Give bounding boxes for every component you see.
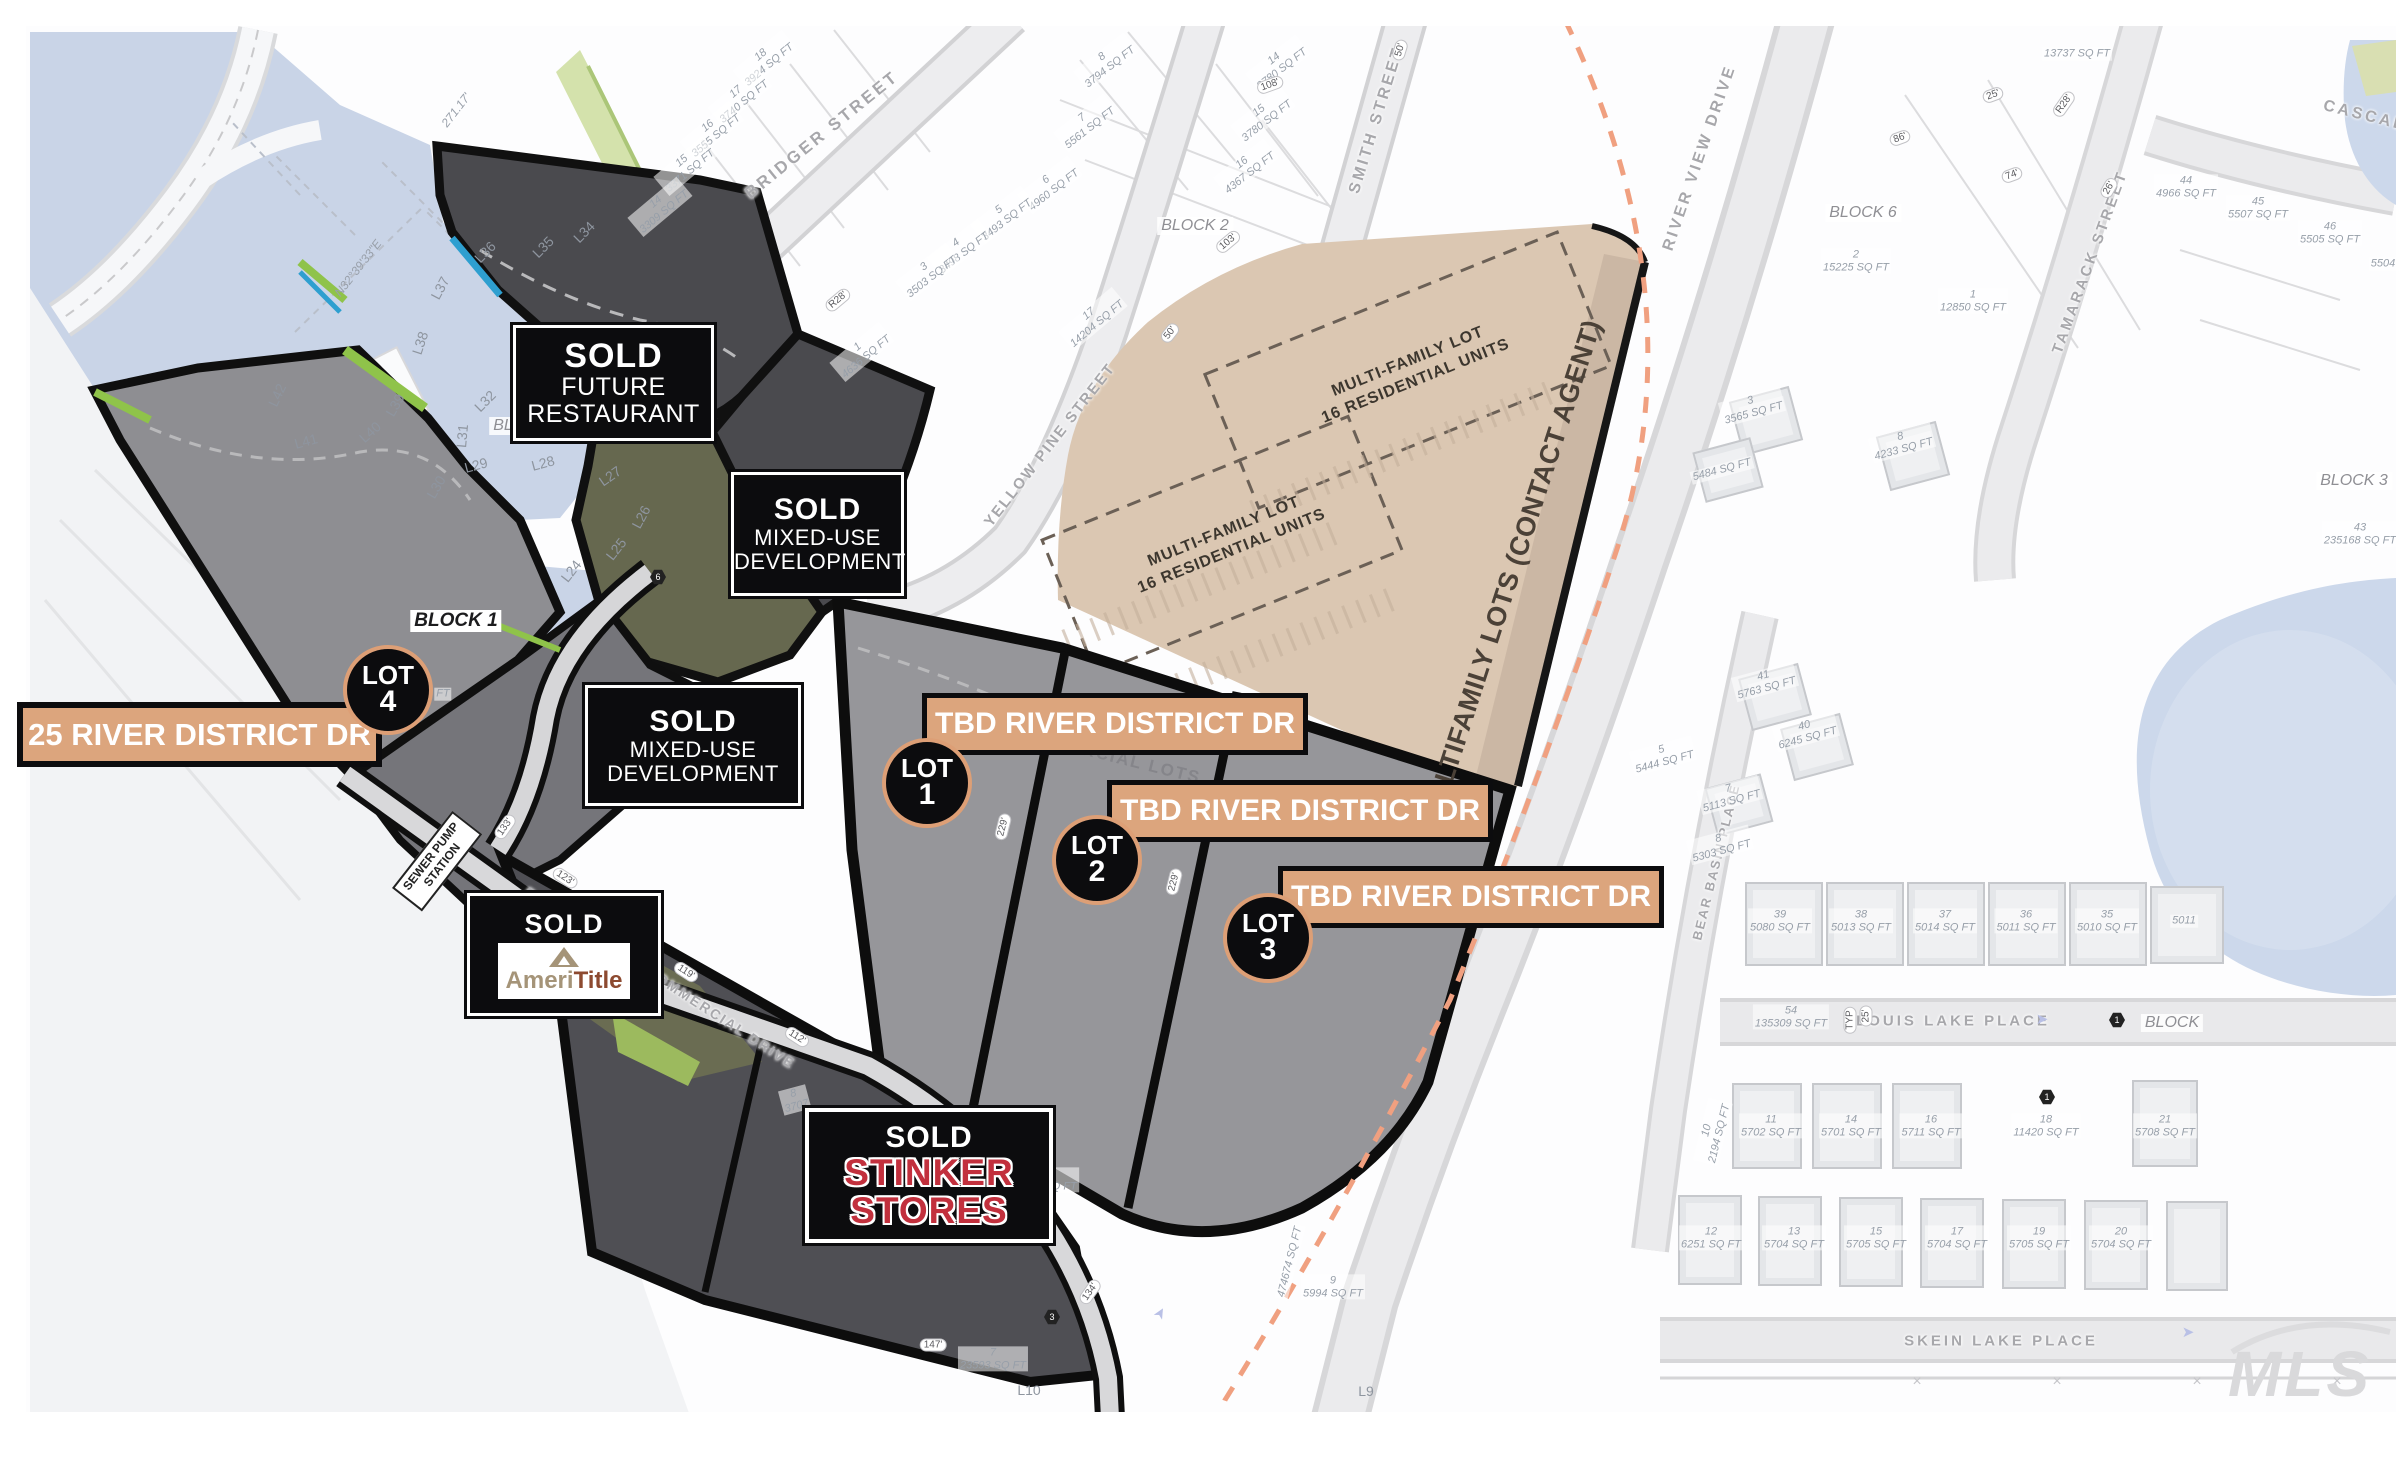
parcel-sqft-label: 444966 SQ FT	[2154, 174, 2218, 199]
sold-stinker-stores-label: SOLD STINKER STORES	[805, 1108, 1053, 1243]
survey-line-label: L41	[293, 430, 320, 452]
dimension-label: 25'	[1860, 1005, 1873, 1026]
fence-x-marker: ×	[2192, 1373, 2201, 1391]
parcel-sqft-label: 145701 SQ FT	[1819, 1113, 1883, 1138]
parcel-sqft-label: 115702 SQ FT	[1739, 1113, 1803, 1138]
survey-line-label: L35	[529, 233, 557, 261]
parcel-sqft-label: 215708 SQ FT	[2133, 1113, 2197, 1138]
lot-4-badge: LOT4	[343, 645, 433, 735]
house-footprint	[2166, 1201, 2228, 1291]
bearing-label: N32°39'33"E	[332, 237, 385, 299]
dimension-label: 25'	[1981, 85, 2005, 104]
survey-line-label: L10	[1017, 1382, 1040, 1398]
parcel-sqft-label: 215225 SQ FT	[1821, 248, 1891, 273]
survey-line-label: L29	[463, 454, 490, 476]
dimension-label: 147'	[920, 1339, 947, 1352]
parcel-sqft-label: 33503 SQ FT	[895, 242, 961, 301]
address-banner-25-river-district: 25 RIVER DISTRICT DR	[17, 702, 382, 767]
survey-line-label: L34	[570, 218, 598, 246]
sold-sub-line: DEVELOPMENT	[734, 550, 901, 574]
parcel-sqft-label: 43235168 SQ FT	[2322, 521, 2396, 546]
lot-1-badge: LOT1	[882, 738, 972, 828]
parcel-sqft-label: 375014 SQ FT	[1913, 908, 1977, 933]
parcel-sqft-label: 13737 SQ FT	[2042, 48, 2112, 61]
survey-line-label: L42	[265, 381, 289, 409]
parcel-sqft-label: 102194 SQ FT	[1693, 1098, 1733, 1166]
dimension-label: 50'	[1391, 38, 1410, 62]
lot-corner-marker: 3	[1044, 1309, 1060, 1325]
sold-sub-line: DEVELOPMENT	[588, 762, 798, 786]
amerititle-wordmark: AmeriTitle	[506, 969, 623, 993]
parcel-sqft-label: 723593 SQ FT	[958, 1346, 1028, 1371]
sold-amerititle-label: SOLD AmeriTitle	[467, 893, 661, 1016]
stinker-line: STORES	[809, 1192, 1049, 1230]
parcel-sqft-label: 1714204 SQ FT	[1058, 287, 1128, 351]
block-label: BLOCK	[2141, 1014, 2203, 1032]
sold-sub-line: MIXED-USE	[588, 738, 798, 762]
parcel-sqft-label: 455507 SQ FT	[2226, 195, 2290, 220]
multifamily-lot-label-1: MULTI-FAMILY LOT 16 RESIDENTIAL UNITS	[1311, 315, 1513, 429]
survey-line-label: L27	[596, 463, 624, 490]
street-name: TAMARACK STREET	[2049, 168, 2131, 356]
lot-2-badge: LOT2	[1052, 815, 1142, 905]
fence-x-marker: ×	[1912, 1373, 1921, 1391]
parcel-sqft-label: 365011 SQ FT	[1994, 908, 2057, 933]
brand-right: Title	[574, 967, 623, 994]
parcel-sqft-label: 155705 SQ FT	[1844, 1225, 1908, 1250]
dimension-label: 133'	[492, 812, 518, 841]
street-name: CASCADE	[2321, 97, 2396, 139]
amerititle-logo: AmeriTitle	[498, 943, 630, 999]
parcel-sqft-label: 175704 SQ FT	[1925, 1225, 1989, 1250]
sold-word: SOLD	[734, 494, 901, 526]
survey-line-label: L25	[603, 535, 630, 563]
parcel-sqft-label: 395080 SQ FT	[1748, 908, 1812, 933]
sold-word: SOLD	[516, 338, 711, 375]
survey-line-label: L30	[423, 473, 449, 501]
survey-line-label: L39	[382, 391, 408, 419]
sold-word: SOLD	[470, 910, 658, 939]
parcel-sqft-label: 195705 SQ FT	[2007, 1225, 2071, 1250]
parcel-sqft-label: 5011	[2170, 915, 2198, 928]
block-label: BLOCK 3	[2316, 472, 2392, 490]
tbd-banner-lot3: TBD RIVER DISTRICT DR	[1278, 866, 1664, 928]
sold-word: SOLD	[588, 706, 798, 738]
dimension-label: R28'	[823, 286, 853, 314]
plat-map: BRIDGER STREETSMITH STREETYELLOW PINE ST…	[0, 0, 2396, 1458]
dimension-label: 123'	[550, 865, 579, 890]
multifamily-lot-label-2: MULTI-FAMILY LOT 16 RESIDENTIAL UNITS	[1127, 485, 1329, 599]
street-name: YELLOW PINE STREET	[981, 360, 1119, 530]
lot-corner-marker: 1	[2039, 1089, 2055, 1105]
parcel-sqft-label: 385013 SQ FT	[1829, 908, 1893, 933]
dimension-label: 50'	[1158, 321, 1181, 346]
sold-word: SOLD	[809, 1122, 1049, 1154]
dimension-label: TYP	[1844, 1006, 1857, 1033]
parcel-sqft-label: 95994 SQ FT	[1301, 1274, 1365, 1299]
lot-badge-number: 2	[1089, 858, 1106, 887]
flow-arrow-icon: ➤	[2182, 1323, 2195, 1341]
parcel-sqft-label: 14636 SQ FT	[829, 322, 894, 382]
parcel-sqft-label: 153780 SQ FT	[1230, 86, 1296, 145]
parcel-sqft-label: 83794 SQ FT	[1073, 32, 1139, 91]
parcel-sqft-label: 5504	[2369, 258, 2396, 271]
survey-line-label: L28	[530, 452, 557, 474]
flow-arrow-icon: ➤	[1149, 1303, 1171, 1323]
fence-x-marker: ×	[2052, 1373, 2061, 1391]
survey-line-label: L37	[427, 274, 452, 302]
street-name: RIVER VIEW DRIVE	[1660, 63, 1741, 254]
flow-arrow-icon: ➤	[2036, 1010, 2049, 1028]
tbd-banner-lot1: TBD RIVER DISTRICT DR	[922, 693, 1308, 755]
parcel-sqft-label: 355010 SQ FT	[2075, 908, 2139, 933]
sold-sub-line: FUTURE	[516, 374, 711, 401]
lot-badge-number: 1	[919, 781, 936, 810]
survey-line-label: L32	[471, 387, 499, 415]
parcel-sqft-label: 126251 SQ FT	[1679, 1225, 1743, 1250]
tbd-banner-lot2: TBD RIVER DISTRICT DR	[1107, 780, 1493, 842]
parcel-sqft-label: 465505 SQ FT	[2298, 220, 2362, 245]
survey-line-label: L40	[356, 418, 384, 446]
amerititle-triangle-icon	[549, 947, 579, 967]
survey-line-label: L36	[471, 238, 499, 266]
survey-line-label: L9	[1358, 1383, 1374, 1399]
block-label: BLOCK 2	[1157, 217, 1233, 235]
parcel-sqft-label: 165711 SQ FT	[1899, 1113, 1962, 1138]
block-label: BLOCK 1	[410, 610, 501, 632]
lot-3-badge: LOT3	[1223, 893, 1313, 983]
sold-sub-line: MIXED-USE	[734, 526, 901, 550]
parcel-sqft-label: FT	[434, 688, 451, 701]
sold-mixed-use-label-1: SOLD MIXED-USE DEVELOPMENT	[731, 472, 904, 596]
sold-mixed-use-label-2: SOLD MIXED-USE DEVELOPMENT	[585, 685, 801, 806]
survey-line-label: L38	[409, 329, 431, 356]
street-name: LOUIS LAKE PLACE	[1856, 1013, 2050, 1030]
stinker-line: STINKER	[809, 1154, 1049, 1192]
survey-line-label: L26	[628, 503, 653, 531]
parcel-sqft-label: 54135309 SQ FT	[1753, 1004, 1829, 1029]
dimension-label: 112'	[783, 1025, 812, 1050]
survey-line-label: L31	[453, 424, 471, 449]
street-name: SKEIN LAKE PLACE	[1904, 1333, 2098, 1350]
lot-corner-marker: 6	[650, 569, 666, 585]
parcel-sqft-label: 1811420 SQ FT	[2011, 1113, 2080, 1138]
parcel-sqft-label: 205704 SQ FT	[2089, 1225, 2153, 1250]
street-name: SMITH STREET	[1346, 44, 1408, 196]
lot-badge-number: 3	[1260, 936, 1277, 965]
bearing-length-label: 271.17'	[438, 90, 473, 129]
dimension-label: 229'	[993, 813, 1012, 842]
parcel-sqft-label: 112850 SQ FT	[1938, 288, 2008, 313]
dimension-label: 86'	[1888, 128, 1912, 147]
parcel-sqft-label: 135704 SQ FT	[1762, 1225, 1826, 1250]
brand-left: Ameri	[506, 967, 574, 994]
parcel-sqft-label: 164367 SQ FT	[1213, 138, 1279, 197]
dimension-label: R28'	[2051, 89, 2078, 120]
mls-watermark: MLS	[2228, 1337, 2372, 1411]
sold-sub-line: RESTAURANT	[516, 401, 711, 428]
parcel-sqft-label: 75561 SQ FT	[1053, 93, 1119, 152]
block-label: BLOCK 6	[1825, 204, 1901, 222]
sold-future-restaurant-label: SOLD FUTURE RESTAURANT	[513, 325, 714, 441]
dimension-label: 229'	[1164, 868, 1183, 897]
lot-badge-number: 4	[380, 688, 397, 717]
dimension-label: 74'	[2000, 165, 2024, 184]
multifamily-contact-agent-label: MULTIFAMILY LOTS (CONTACT AGENT)	[1416, 316, 1609, 828]
survey-line-label: L24	[558, 557, 585, 585]
lot-corner-marker: 1	[2109, 1012, 2125, 1028]
parcel-sqft-label: 55444 SQ FT	[1629, 736, 1697, 777]
dimension-label: 134'	[1077, 1277, 1103, 1306]
